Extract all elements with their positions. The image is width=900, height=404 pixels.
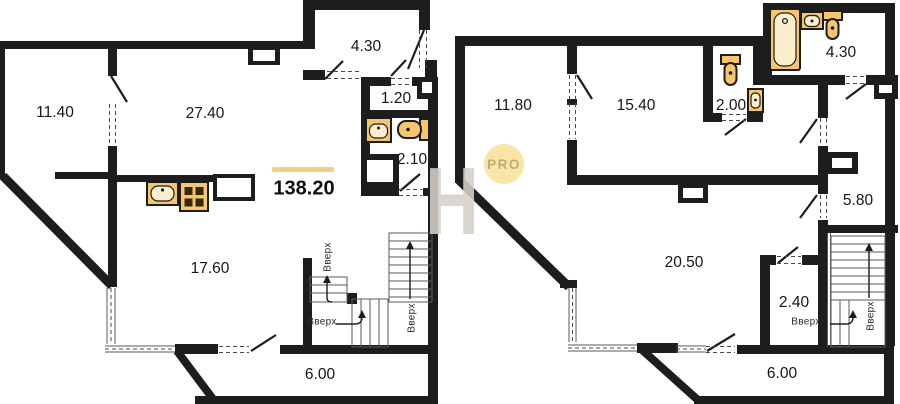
room-area-label: 1.20 <box>381 90 411 108</box>
stairs-up-label: Вверх <box>866 301 877 330</box>
brand-watermark: H <box>425 154 479 250</box>
room-area-label: 4.30 <box>351 38 381 56</box>
room-area-label: 11.40 <box>36 104 74 122</box>
stove-icon <box>180 182 208 211</box>
room-area-label: 2.10 <box>397 151 427 169</box>
total-area-highlight <box>272 167 334 172</box>
stairs-up-label: Вверх <box>307 317 336 328</box>
floor1-kitchen-fixtures <box>147 176 253 211</box>
room-area-label: 20.50 <box>665 254 704 272</box>
pro-badge: PRO <box>484 144 524 184</box>
room-area-label: 6.00 <box>767 365 797 383</box>
room-area-label: 2.00 <box>716 97 746 115</box>
counter-icon <box>215 176 253 199</box>
floor2-windows <box>568 288 706 352</box>
floor1-bathroom-fixtures <box>366 118 429 142</box>
floor2-walls <box>455 3 898 404</box>
stairs-up-label: Вверх <box>407 303 418 332</box>
room-area-label: 2.40 <box>779 294 809 312</box>
floor1-windows <box>105 288 175 352</box>
total-area-value: 138.20 <box>273 178 334 201</box>
room-area-label: 17.60 <box>191 260 230 278</box>
stairs-up-label: Вверх <box>323 242 334 271</box>
room-area-label: 4.30 <box>826 44 856 62</box>
floorplan-screenshot: H PRO 11.40 27.40 4.30 1.20 2.10 17.60 6… <box>0 0 900 404</box>
room-area-label: 6.00 <box>305 366 335 384</box>
floor1-walls <box>0 0 438 404</box>
room-area-label: 27.40 <box>186 105 225 123</box>
stairs-up-label: Вверх <box>791 317 820 328</box>
room-area-label: 15.40 <box>617 97 656 115</box>
room-area-label: 5.80 <box>843 192 873 210</box>
room-area-label: 11.80 <box>494 97 532 115</box>
